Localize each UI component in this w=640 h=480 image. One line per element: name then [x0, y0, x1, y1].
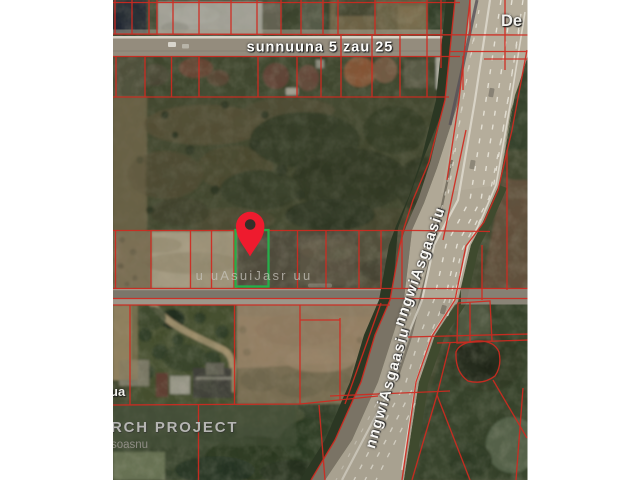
svg-text:RCH PROJECT: RCH PROJECT [111, 419, 238, 436]
svg-text:soasnu: soasnu [111, 439, 148, 451]
svg-text:u uAsuiJasr uu: u uAsuiJasr uu [196, 268, 313, 283]
svg-text:De: De [501, 12, 522, 30]
svg-text:sunnuuna 5 zau 25: sunnuuna 5 zau 25 [247, 40, 394, 56]
